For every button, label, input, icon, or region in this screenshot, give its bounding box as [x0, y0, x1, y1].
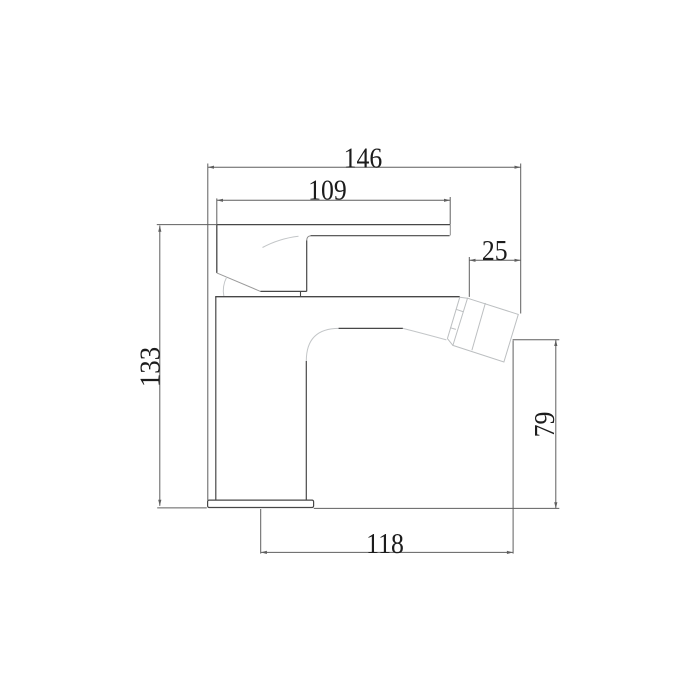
svg-text:118: 118	[366, 528, 404, 559]
svg-text:25: 25	[482, 235, 508, 266]
svg-text:79: 79	[529, 412, 560, 438]
svg-text:109: 109	[308, 175, 347, 206]
svg-text:133: 133	[135, 347, 166, 387]
svg-text:146: 146	[344, 142, 383, 173]
